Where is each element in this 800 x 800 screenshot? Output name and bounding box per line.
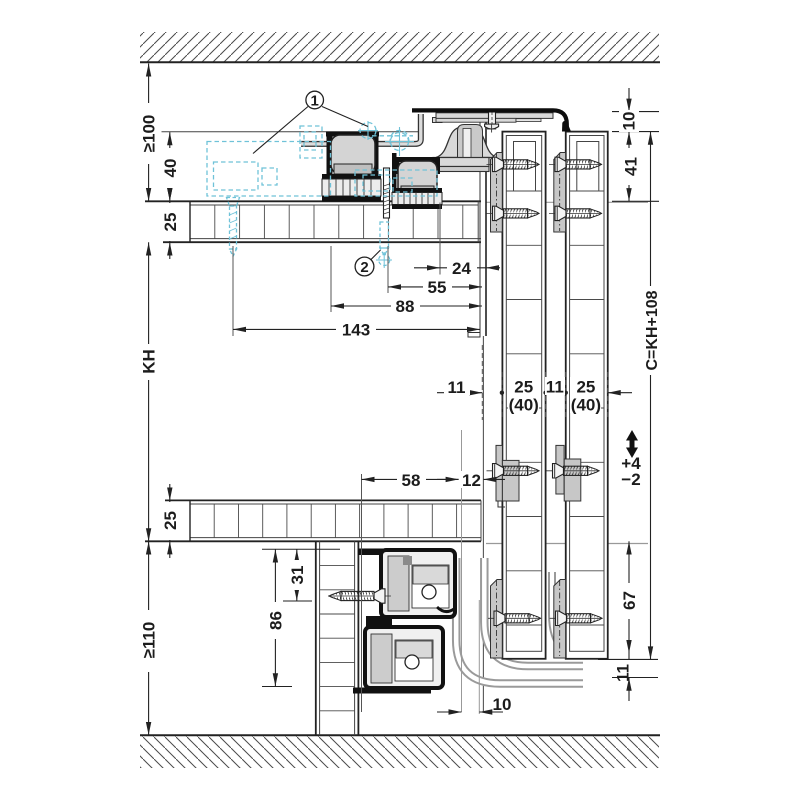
- svg-text:86: 86: [266, 611, 285, 630]
- svg-text:55: 55: [428, 278, 447, 297]
- svg-text:58: 58: [402, 471, 421, 490]
- svg-text:11: 11: [546, 378, 564, 397]
- svg-text:41: 41: [622, 157, 641, 176]
- svg-text:10: 10: [493, 695, 512, 714]
- svg-text:12: 12: [462, 471, 481, 490]
- svg-text:25: 25: [161, 511, 180, 530]
- svg-text:11: 11: [448, 378, 466, 397]
- svg-text:143: 143: [342, 321, 370, 340]
- svg-text:(40): (40): [571, 396, 601, 415]
- svg-text:24: 24: [452, 259, 471, 278]
- svg-text:1: 1: [311, 93, 319, 110]
- svg-text:2: 2: [360, 259, 368, 276]
- svg-text:25: 25: [576, 378, 595, 397]
- svg-text:31: 31: [288, 566, 307, 585]
- svg-text:10: 10: [620, 112, 639, 131]
- svg-text:KH: KH: [140, 349, 159, 374]
- svg-text:≥100: ≥100: [140, 115, 159, 153]
- svg-text:67: 67: [620, 591, 639, 610]
- svg-text:C=KH+108: C=KH+108: [644, 290, 661, 370]
- svg-text:25: 25: [161, 213, 180, 232]
- svg-text:−2: −2: [621, 470, 640, 489]
- svg-text:40: 40: [161, 159, 180, 178]
- svg-text:11: 11: [614, 664, 633, 682]
- svg-text:≥110: ≥110: [140, 622, 159, 659]
- svg-text:(40): (40): [509, 396, 539, 415]
- svg-text:88: 88: [396, 297, 415, 316]
- svg-text:25: 25: [514, 378, 533, 397]
